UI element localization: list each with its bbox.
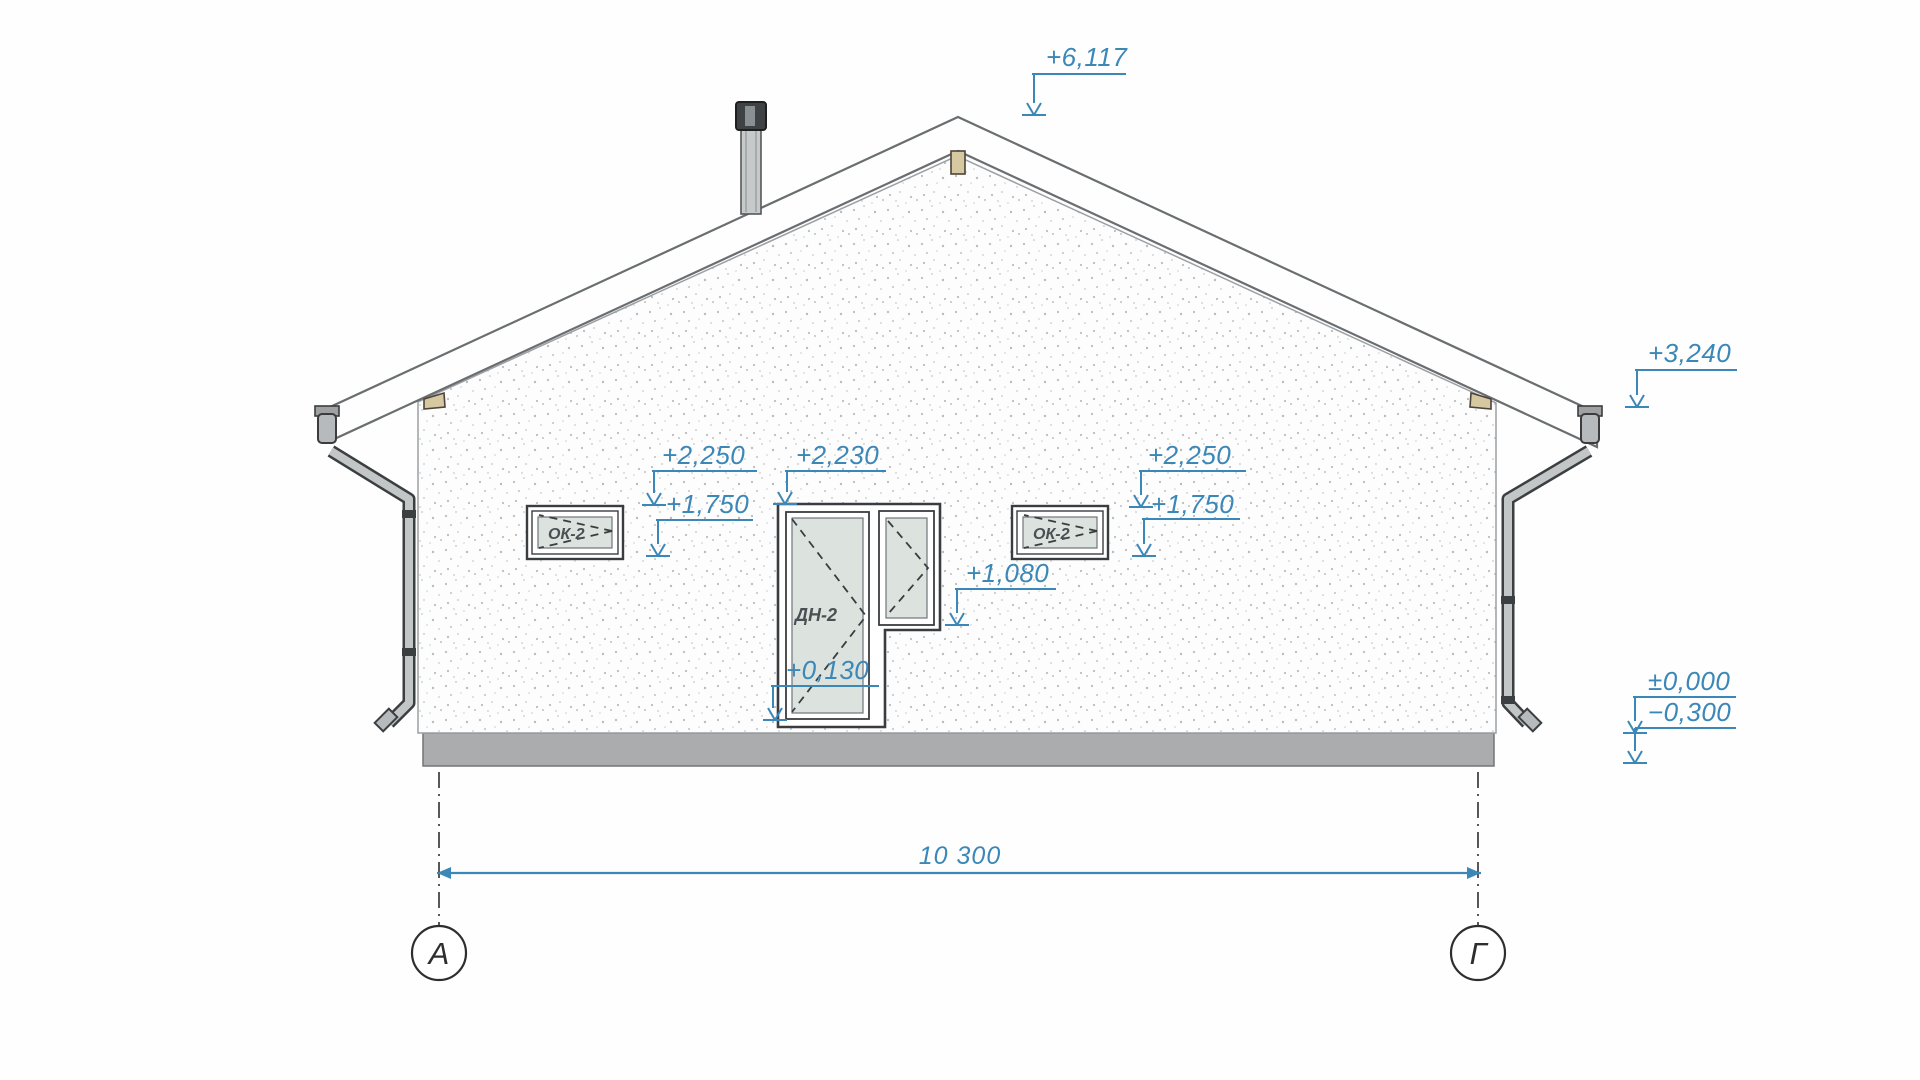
downspout-right [1501,406,1602,731]
axis-marker-right: Г [1451,926,1505,980]
elevation-mark-eaves: +3,240 [1625,338,1737,407]
elevation-mark-ground-zero-value: ±0,000 [1648,666,1730,696]
gable-wall [418,156,1496,733]
elevation-mark-ground-below-value: −0,300 [1648,697,1731,727]
dimension-overall-value: 10 300 [919,842,1001,870]
elevation-mark-door-head-value: +2,230 [796,440,879,470]
chimney [736,102,766,214]
gutter-right [1581,414,1599,443]
elevation-mark-left-window-head-value: +2,250 [662,440,745,470]
elevation-mark-ridge: +6,117 [1022,42,1128,115]
dimension-line-overall: 10 300 [437,842,1481,879]
chimney-pipe [741,129,761,214]
sidelight-glass [886,518,927,618]
axis-marker-left-label: А [427,936,450,971]
elevation-mark-ground-below: −0,300 [1623,697,1736,763]
elevation-mark-eaves-value: +3,240 [1648,338,1731,368]
window-left: ОК-2 [527,506,623,559]
elevation-drawing-page: ОК-2 ОК-2 ДН-2 +6,117 +3,240 +2,250 +1,7… [0,0,1920,1080]
window-left-label: ОК-2 [548,526,585,543]
elevation-mark-ridge-value: +6,117 [1046,42,1128,72]
elevation-mark-threshold-value: +0,130 [786,655,869,685]
elevation-mark-right-window-sill-value: +1,750 [1151,489,1234,519]
elevation-mark-sidelight-sill-value: +1,080 [966,558,1049,588]
elevation-mark-right-window-head-value: +2,250 [1148,440,1231,470]
window-right-label: ОК-2 [1033,526,1070,543]
gutter-left [318,414,336,443]
elevation-mark-left-window-sill-value: +1,750 [666,489,749,519]
door-label: ДН-2 [793,605,837,625]
elevation-drawing-canvas: ОК-2 ОК-2 ДН-2 +6,117 +3,240 +2,250 +1,7… [0,0,1920,1080]
ridge-block [951,151,965,174]
chimney-cap-highlight [745,106,755,126]
plinth-base [423,733,1494,766]
axis-marker-left: А [412,926,466,980]
axis-marker-right-label: Г [1470,936,1489,971]
downspout-left [315,406,416,731]
dimension-arrow-right [1467,867,1481,879]
window-right: ОК-2 [1012,506,1108,559]
